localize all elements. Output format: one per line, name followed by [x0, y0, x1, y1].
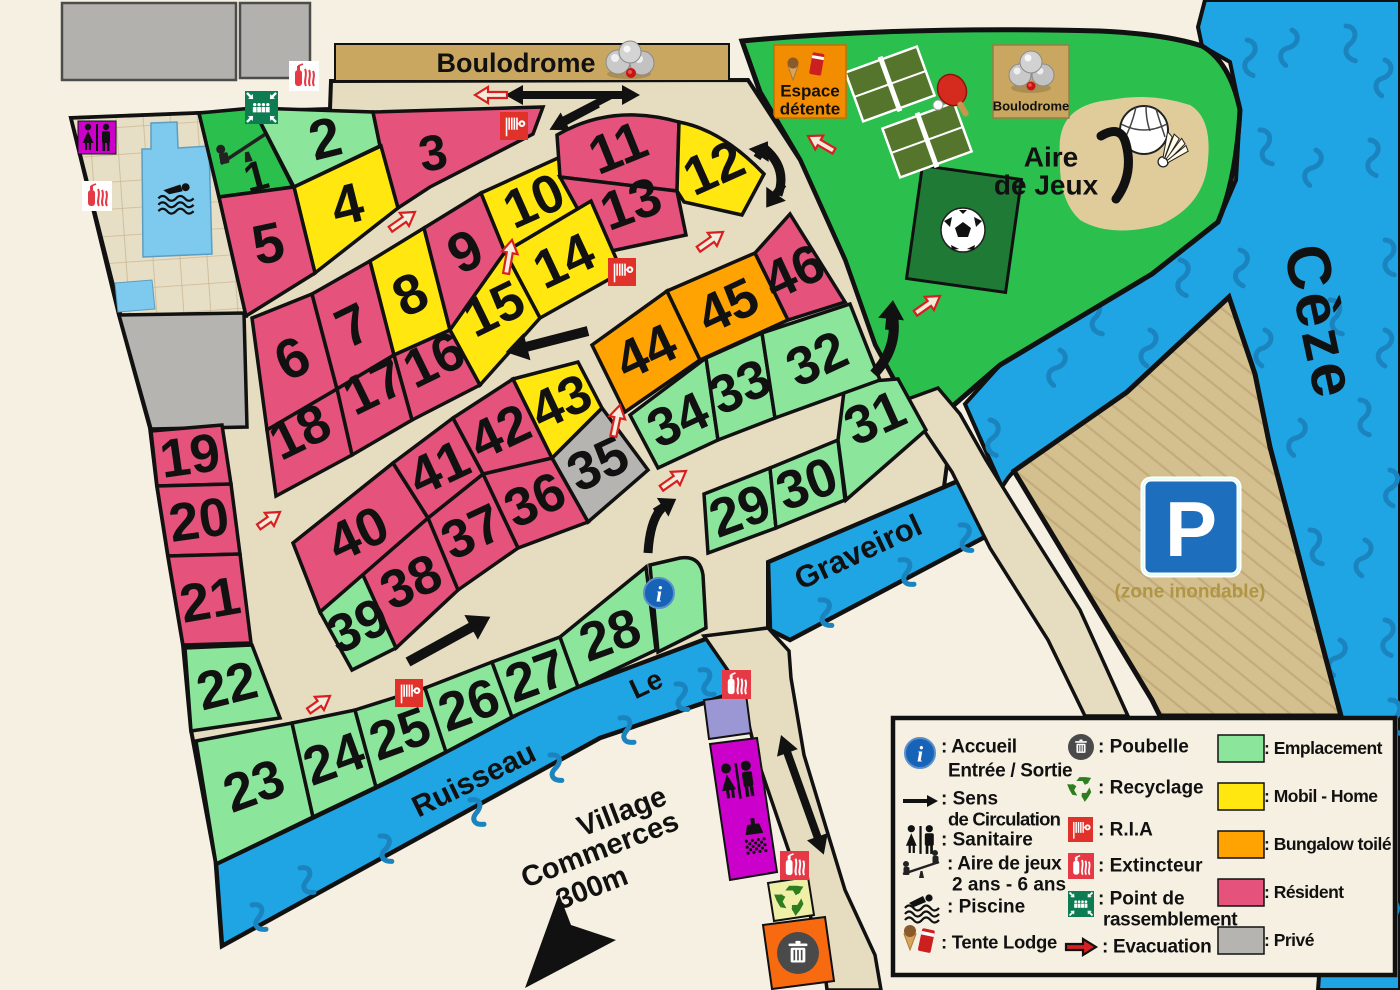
svg-text:2 ans - 6 ans: 2 ans - 6 ans [952, 875, 1066, 896]
svg-text:: Piscine: : Piscine [947, 897, 1025, 918]
svg-text:: R.I.A: : R.I.A [1098, 820, 1153, 841]
svg-text:: Mobil - Home: : Mobil - Home [1264, 786, 1378, 806]
svg-text:Boulodrome: Boulodrome [437, 48, 596, 78]
svg-text:de Circulation: de Circulation [948, 809, 1061, 830]
svg-text:(zone inondable): (zone inondable) [1115, 582, 1266, 603]
svg-text:: Aire de jeux: : Aire de jeux [947, 854, 1062, 875]
svg-text:: Recyclage: : Recyclage [1098, 778, 1204, 799]
svg-text:: Accueil: : Accueil [941, 737, 1017, 758]
svg-text:: Evacuation: : Evacuation [1102, 937, 1211, 958]
svg-text:21: 21 [175, 565, 245, 635]
svg-text:: Tente Lodge: : Tente Lodge [941, 932, 1057, 953]
svg-text:: Point de: : Point de [1098, 889, 1185, 910]
svg-text:Aire: Aire [1024, 142, 1078, 173]
svg-text:: Bungalow toilé: : Bungalow toilé [1264, 834, 1392, 854]
svg-text:20: 20 [165, 486, 233, 554]
svg-text:Boulodrome: Boulodrome [993, 99, 1070, 114]
svg-text:: Sanitaire: : Sanitaire [941, 830, 1033, 851]
svg-text:Entrée / Sortie: Entrée / Sortie [948, 761, 1072, 782]
svg-text:: Poubelle: : Poubelle [1098, 737, 1189, 758]
svg-text:i: i [656, 582, 663, 607]
svg-text:P: P [1165, 485, 1217, 573]
svg-text:i: i [917, 742, 924, 767]
svg-text:: Privé: : Privé [1264, 930, 1315, 950]
svg-text:: Emplacement: : Emplacement [1264, 738, 1383, 758]
svg-text:: Extincteur: : Extincteur [1098, 856, 1203, 877]
svg-text:détente: détente [780, 100, 840, 119]
svg-text:19: 19 [156, 422, 224, 490]
svg-text:: Sens: : Sens [941, 789, 998, 810]
svg-text:Espace: Espace [780, 82, 840, 101]
svg-text:: Résident: : Résident [1264, 882, 1344, 902]
svg-text:de Jeux: de Jeux [994, 170, 1099, 201]
